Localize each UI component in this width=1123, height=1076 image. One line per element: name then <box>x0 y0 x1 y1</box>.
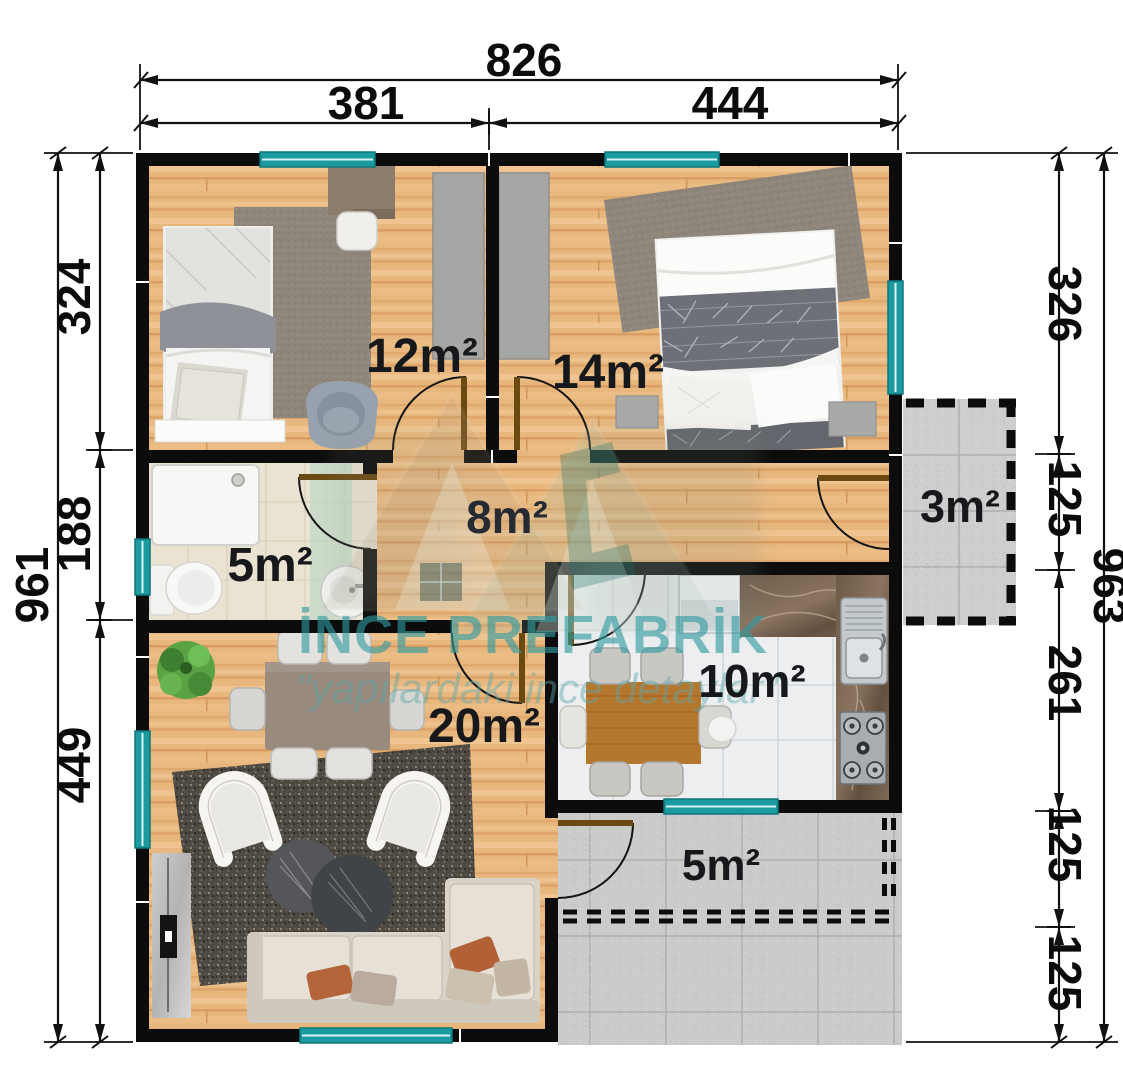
svg-text:261: 261 <box>1039 645 1091 722</box>
svg-text:125: 125 <box>1039 806 1091 883</box>
svg-text:10m²: 10m² <box>698 655 805 707</box>
svg-text:449: 449 <box>48 727 100 804</box>
svg-text:326: 326 <box>1039 266 1091 343</box>
svg-text:5m²: 5m² <box>682 841 760 890</box>
svg-text:5m²: 5m² <box>227 539 312 592</box>
svg-text:8m²: 8m² <box>466 491 548 543</box>
svg-text:444: 444 <box>692 77 769 129</box>
svg-text:324: 324 <box>48 258 100 335</box>
svg-text:125: 125 <box>1039 935 1091 1012</box>
svg-text:3m²: 3m² <box>920 481 1000 532</box>
svg-text:14m²: 14m² <box>552 346 664 399</box>
svg-text:826: 826 <box>486 34 563 86</box>
svg-text:125: 125 <box>1039 461 1091 538</box>
svg-text:381: 381 <box>328 77 405 129</box>
svg-text:188: 188 <box>48 496 100 573</box>
svg-text:963: 963 <box>1084 548 1123 625</box>
svg-text:12m²: 12m² <box>366 330 478 383</box>
svg-text:20m²: 20m² <box>428 700 540 753</box>
